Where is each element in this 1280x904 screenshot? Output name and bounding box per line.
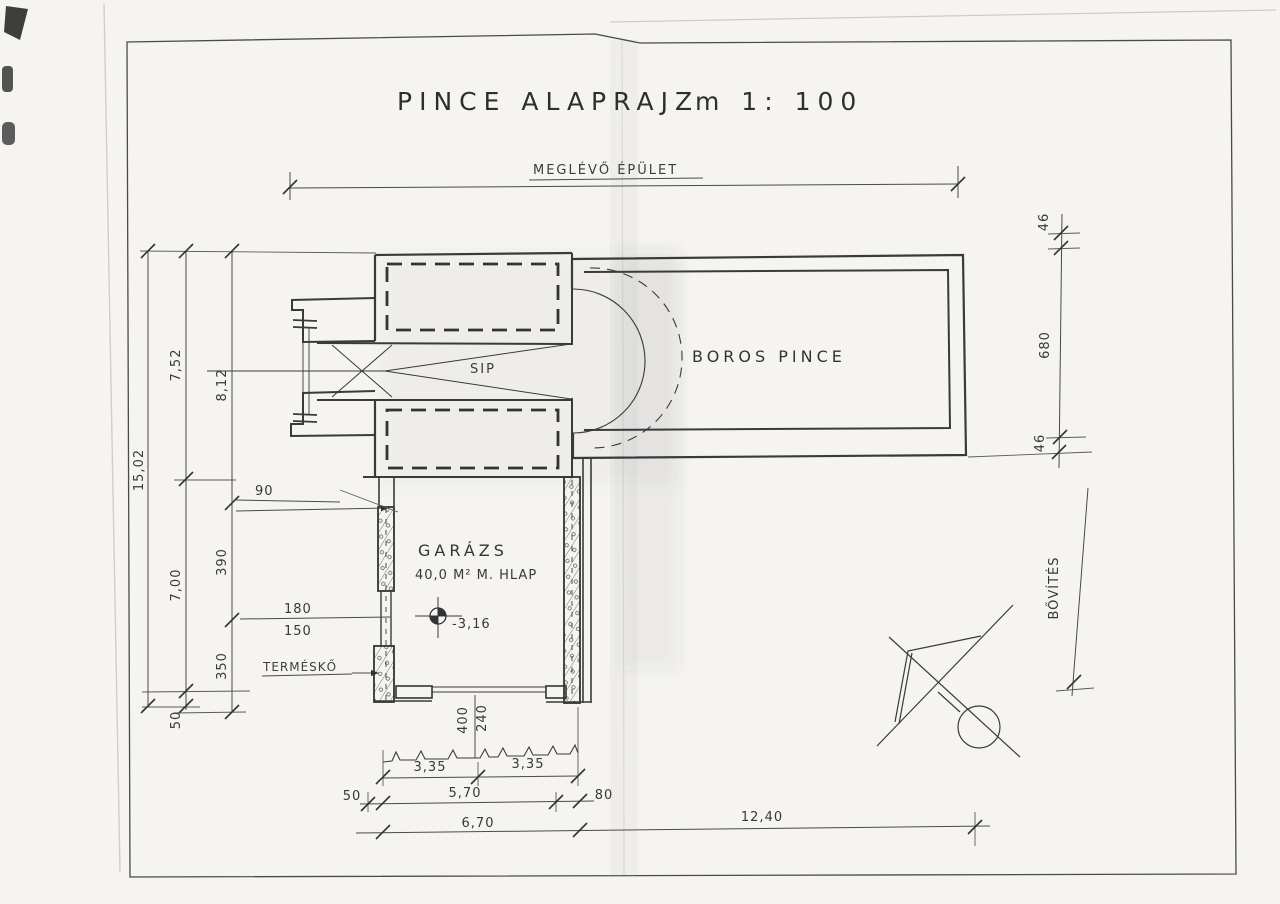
dim-80: 80 — [595, 788, 614, 803]
dimension-opening: 180 150 — [240, 602, 390, 639]
wine-cellar-label: BOROS PINCE — [692, 347, 846, 366]
existing-building-label: MEGLÉVŐ ÉPÜLET — [533, 161, 678, 178]
garage-wall-left-lower — [374, 646, 394, 702]
dim-670: 6,70 — [462, 816, 495, 831]
dim-cellar-len: 680 — [1038, 331, 1053, 359]
dim-cellar-mid: 8,12 — [215, 369, 230, 402]
dimension-wall-90: 90 — [236, 484, 398, 512]
dim-seg-b: 350 — [215, 652, 230, 680]
page-border — [127, 34, 1236, 877]
chute-label: SIP — [470, 362, 496, 377]
dim-335-left: 3,35 — [414, 760, 447, 775]
dimension-chain-left: 15,02 7,52 7,00 50 8,12 390 350 90 180 1… — [132, 244, 398, 729]
extension-label: BŐVÍTÉS — [1046, 556, 1062, 619]
dim-rwall-top: 46 — [1037, 213, 1052, 232]
dim-50: 50 — [343, 789, 362, 804]
garage-threshold-right — [546, 686, 566, 698]
floorplan-canvas: PINCE ALAPRAJZ m 1: 100 MEGLÉVŐ ÉPÜLET B… — [0, 0, 1280, 904]
entry-wall-bottom — [291, 391, 375, 436]
drawing-title: PINCE ALAPRAJZ — [397, 87, 699, 116]
scanned-floorplan-page: PINCE ALAPRAJZ m 1: 100 MEGLÉVŐ ÉPÜLET B… — [0, 0, 1280, 904]
drawing-scale: m 1: 100 — [695, 87, 863, 116]
extension-note: BŐVÍTÉS — [1046, 488, 1094, 696]
dim-total-left: 15,02 — [132, 449, 147, 491]
floor-level-label: -3,16 — [452, 617, 491, 632]
terrain-line — [383, 745, 578, 762]
dim-wall-90-label: 90 — [255, 484, 274, 499]
dim-open-150: 150 — [284, 624, 312, 639]
stone-note: TERMÉSKŐ — [262, 659, 378, 676]
dimension-chain-bottom: 3,35 3,35 50 5,70 80 6,70 12,40 — [343, 707, 990, 846]
garage-threshold-left — [396, 686, 432, 698]
dim-base-left: 50 — [169, 711, 184, 730]
dim-1240: 12,40 — [741, 810, 783, 825]
scan-artifacts — [2, 4, 1276, 876]
dim-seg-a: 390 — [215, 548, 230, 576]
dim-rwall-bot: 46 — [1033, 434, 1048, 453]
north-arrow-icon — [877, 605, 1020, 757]
dim-335-right: 3,35 — [512, 757, 545, 772]
dimension-chain-right: 46 680 46 BŐVÍTÉS — [968, 213, 1094, 696]
natural-stone-label: TERMÉSKŐ — [262, 659, 337, 674]
garage-label: GARÁZS — [418, 541, 508, 560]
title-block: PINCE ALAPRAJZ m 1: 100 — [397, 87, 863, 116]
dim-570: 5,70 — [449, 786, 482, 801]
door-width-label: 400 — [456, 706, 471, 734]
garage-room: GARÁZS 40,0 M² M. HLAP 400 240 — [374, 458, 591, 762]
level-marker-icon: -3,16 — [415, 597, 491, 638]
dim-upper-left: 7,52 — [169, 349, 184, 382]
dim-lower-left: 7,00 — [169, 569, 184, 602]
door-height-label: 240 — [475, 704, 490, 732]
dim-open-180: 180 — [284, 602, 312, 617]
garage-area-label: 40,0 M² M. HLAP — [415, 568, 537, 583]
